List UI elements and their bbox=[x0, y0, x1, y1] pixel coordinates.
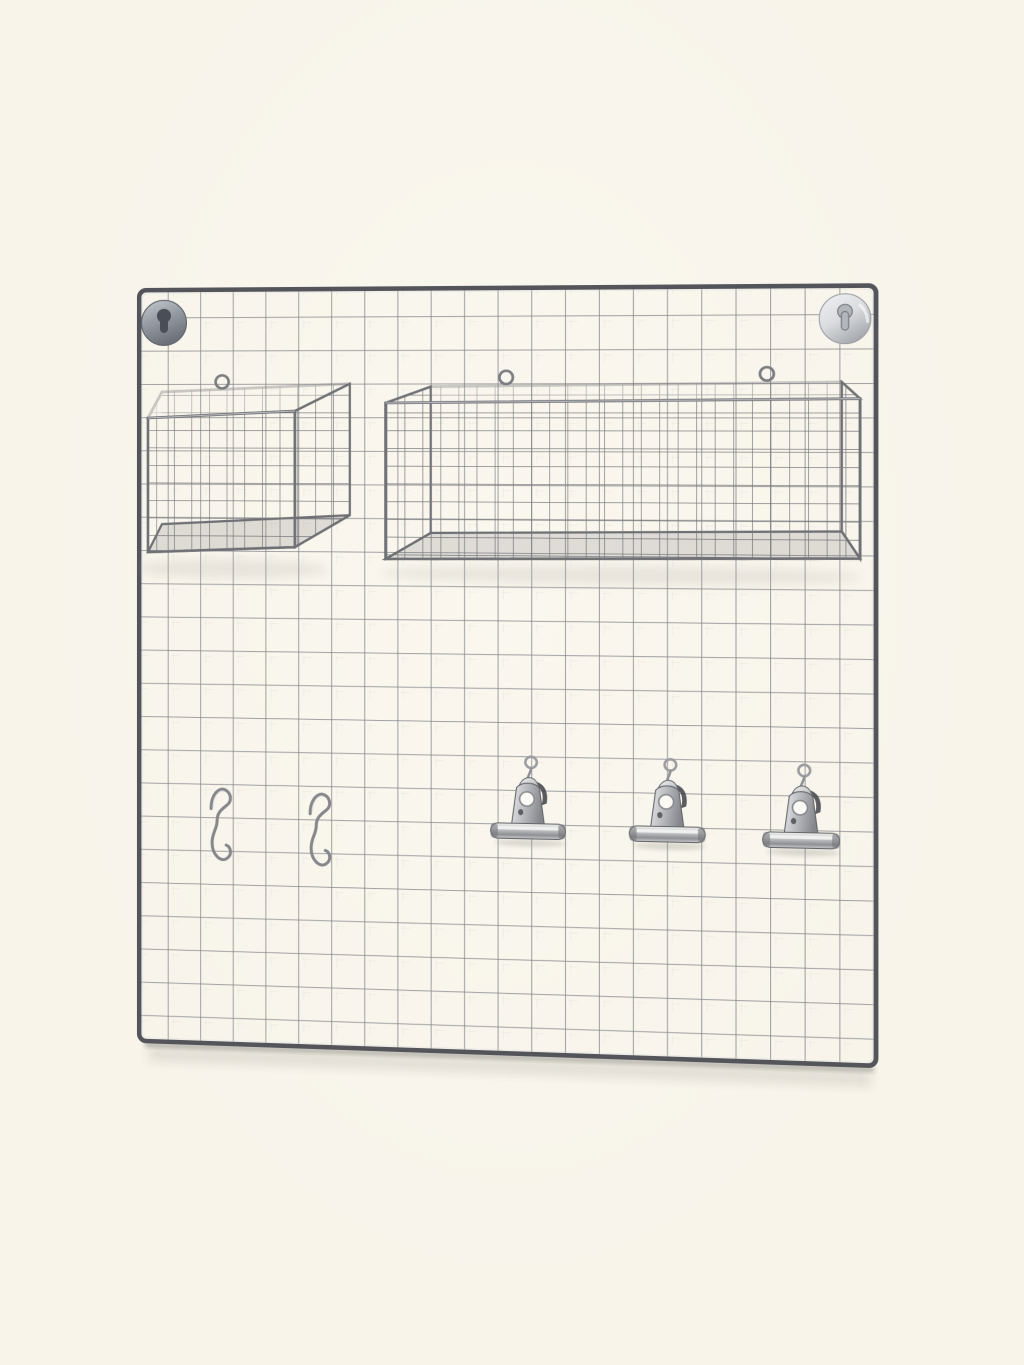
product-photo bbox=[0, 0, 1024, 1365]
wire-grid-board bbox=[137, 283, 878, 1120]
keyhole-mount-right bbox=[819, 294, 871, 344]
basket-large-rect bbox=[386, 367, 860, 563]
basket-small-cube bbox=[148, 375, 350, 554]
keyhole-mount-left bbox=[141, 300, 186, 345]
grid-panel-wrap bbox=[137, 283, 878, 1068]
